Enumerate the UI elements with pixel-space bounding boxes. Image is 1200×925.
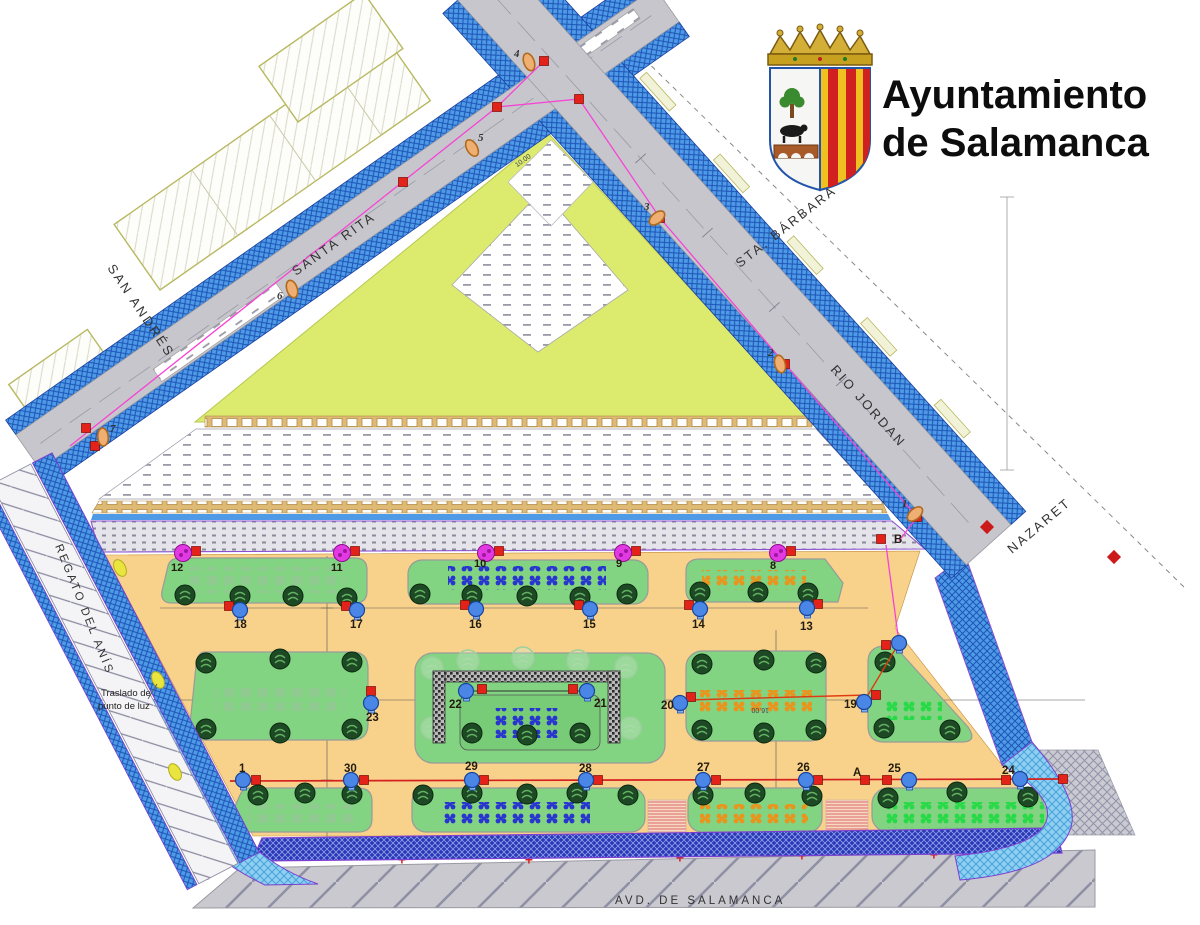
steps-zone [648, 800, 686, 832]
lamp-label: 7 [110, 423, 116, 435]
lamp-label: 3 [643, 201, 650, 213]
marker-label: 10 [474, 558, 486, 570]
lamp-label: 2 [767, 347, 774, 359]
plants-light-green [248, 804, 360, 828]
marker-label: 17 [350, 619, 363, 631]
dirt-band [99, 429, 880, 499]
garden-beds-top-row [162, 558, 843, 608]
plants-blue [440, 802, 590, 826]
marker-label: 19 [844, 699, 857, 711]
plants-bright-green [884, 698, 942, 720]
plants-bright-green [884, 802, 1044, 828]
marker-label: 14 [692, 619, 705, 631]
bed-dimension: 16.00 [751, 706, 769, 713]
lamp-label: 5 [478, 132, 484, 144]
marker-label: 28 [579, 763, 592, 775]
relocated-light-icon [175, 545, 192, 562]
upper-walkway [91, 521, 925, 552]
retaining-wall [92, 501, 887, 513]
marker-label: 15 [583, 619, 596, 631]
marker-label: 13 [800, 621, 813, 633]
marker-label: 30 [344, 763, 357, 775]
marker-label: 11 [331, 562, 343, 574]
marker-label: 25 [888, 763, 901, 775]
plants-light-green [185, 567, 345, 593]
annotation-line2: punto de luz [98, 701, 150, 712]
site-plan-drawing: 16.00 +++ +++ [0, 0, 1200, 925]
logo-title-line2: de Salamanca [882, 121, 1150, 165]
lamp-label: 6 [277, 290, 283, 302]
marker-label: 21 [594, 698, 607, 710]
label-avd-de-salamanca: AVD. DE SALAMANCA [615, 895, 785, 907]
terrace-blocks-row [205, 416, 812, 427]
steps-zone [826, 800, 868, 834]
marker-label: 12 [171, 562, 183, 574]
marker-label: 9 [616, 558, 622, 570]
wall-edge [91, 514, 891, 520]
marker-label: 22 [449, 699, 462, 711]
marker-label: 1 [239, 763, 246, 775]
marker-label: 23 [366, 712, 379, 724]
coat-of-arms-icon [768, 24, 872, 192]
lamp-label: 1 [902, 498, 908, 510]
marker-label: 24 [1002, 765, 1015, 777]
marker-label: 8 [770, 560, 776, 572]
reference-letter-a: A [853, 767, 861, 779]
plants-light-green [215, 685, 345, 715]
plan-svg: 16.00 +++ +++ [0, 0, 1200, 925]
annotation-traslado: Traslado de punto de luz [98, 684, 157, 712]
marker-label: 29 [465, 761, 478, 773]
reference-letter-b: B [894, 534, 902, 546]
marker-label: 20 [661, 700, 674, 712]
annotation-line1: Traslado de [101, 688, 151, 699]
marker-label: 18 [234, 619, 247, 631]
marker-label: 26 [797, 762, 810, 774]
marker-label: 16 [469, 619, 482, 631]
marker-label: 27 [697, 762, 710, 774]
logo-title-line1: Ayuntamiento [882, 73, 1147, 117]
lamp-label: 4 [513, 48, 520, 60]
plants-orange [700, 804, 808, 826]
